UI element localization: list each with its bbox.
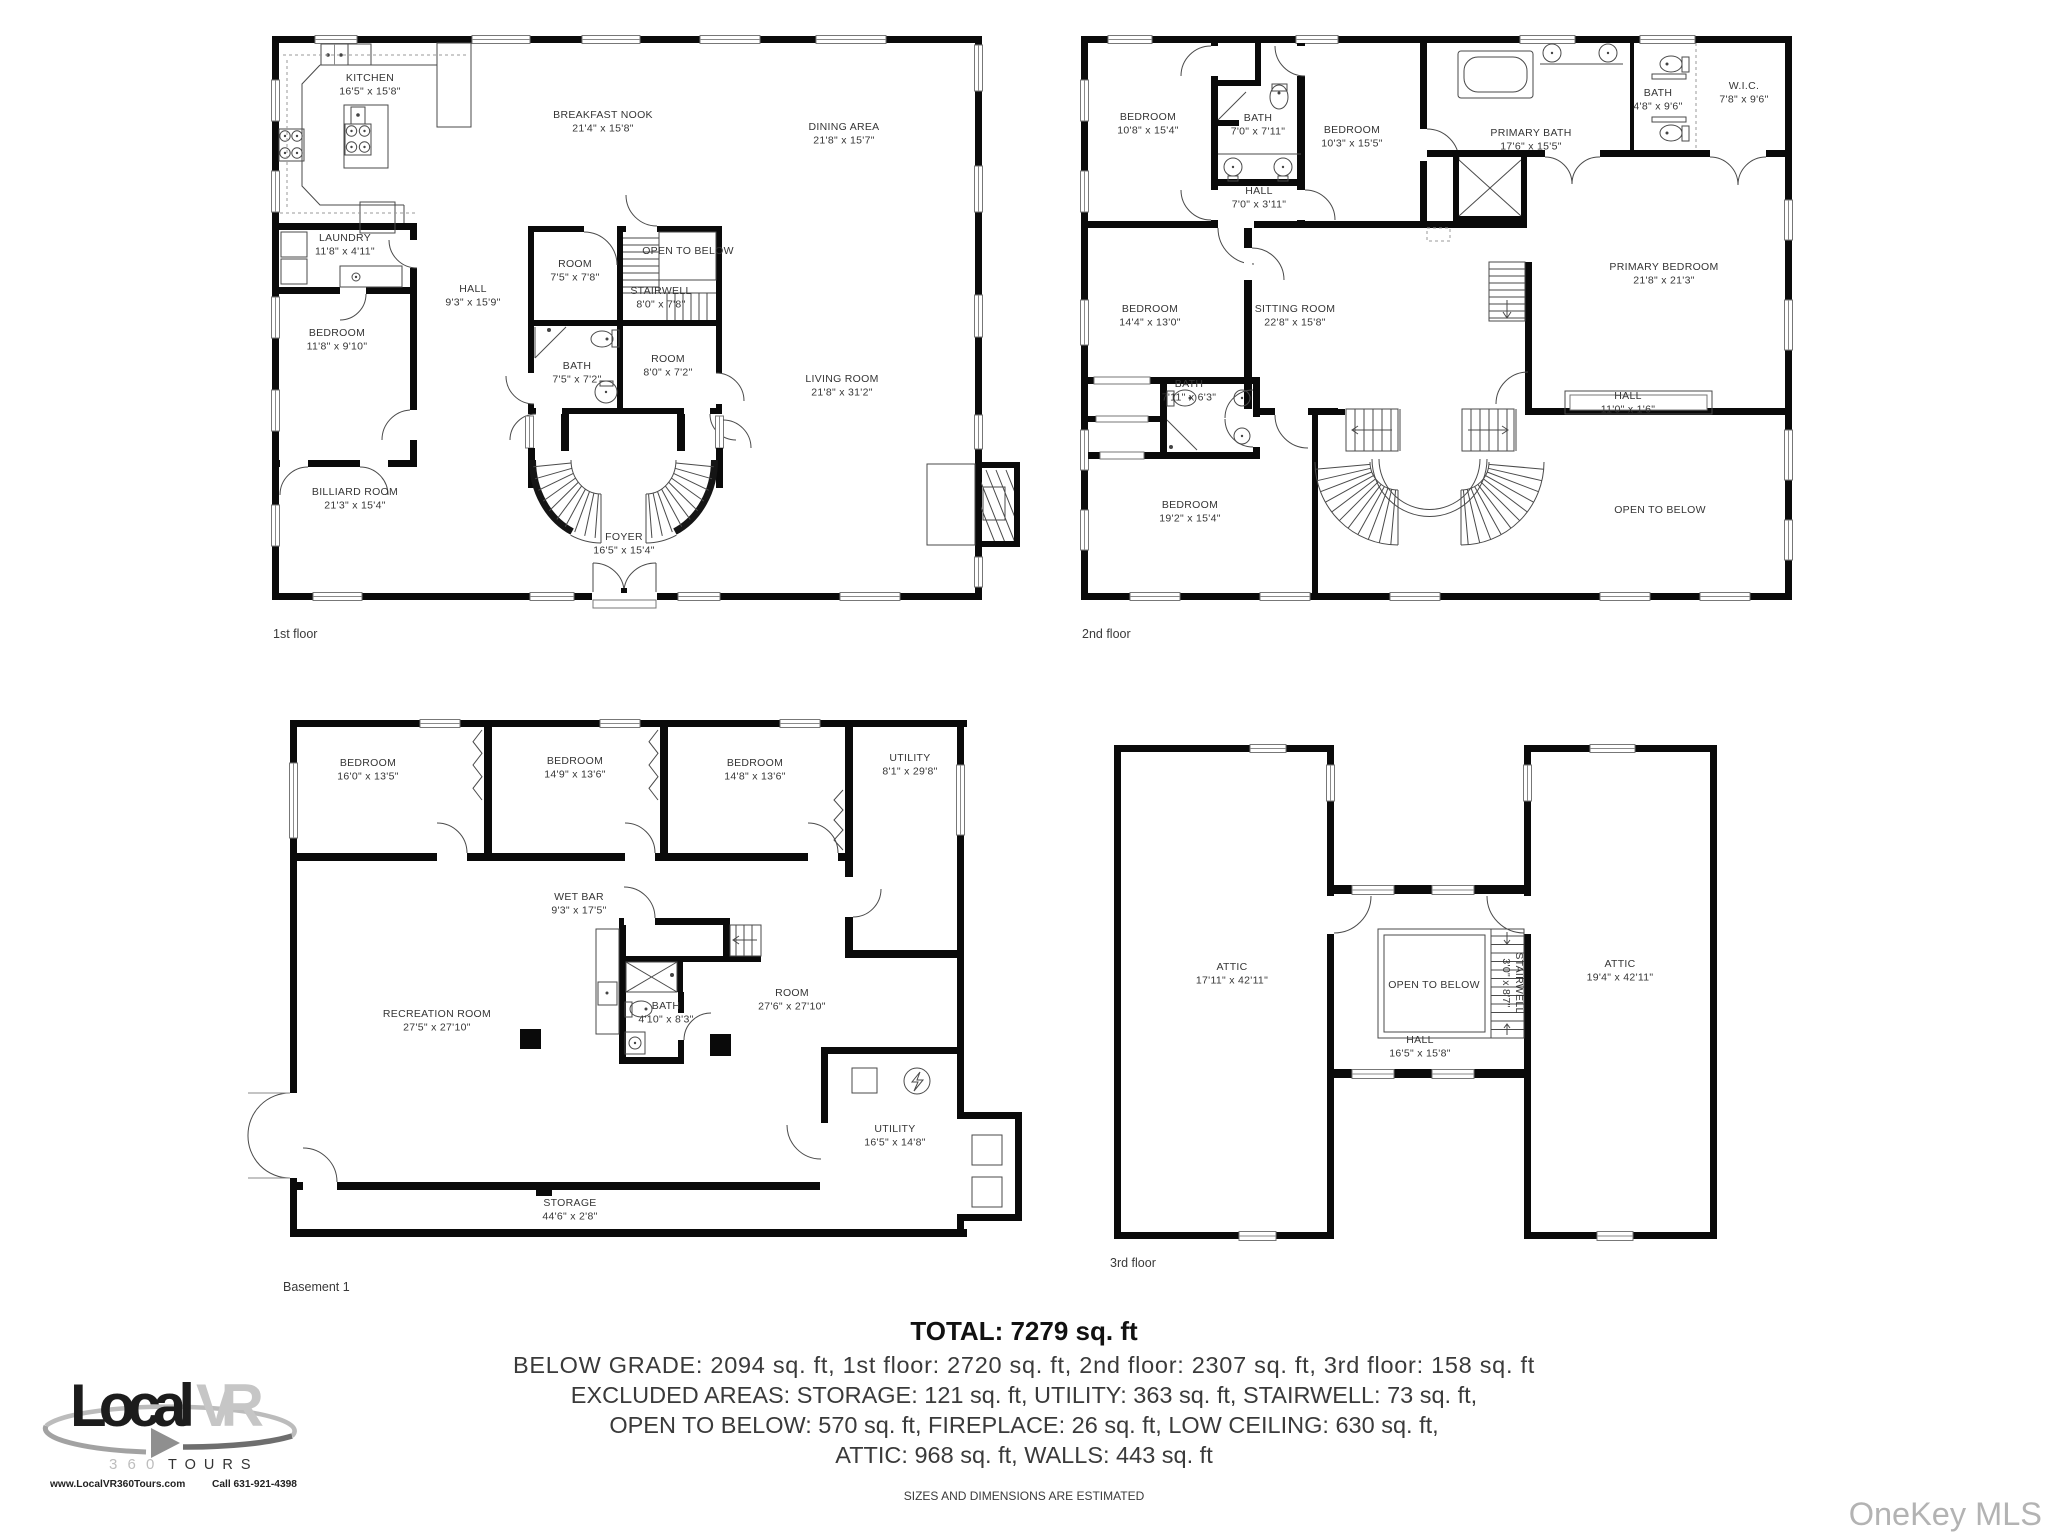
svg-text:BATH: BATH — [1644, 87, 1672, 99]
svg-text:8'0" x 7'2": 8'0" x 7'2" — [643, 367, 692, 379]
svg-text:PRIMARY BATH: PRIMARY BATH — [1490, 127, 1571, 139]
svg-text:VR: VR — [196, 1372, 264, 1439]
svg-text:14'9" x 13'6": 14'9" x 13'6" — [544, 769, 606, 781]
svg-text:10'8" x 15'4": 10'8" x 15'4" — [1117, 125, 1179, 137]
svg-text:STORAGE: STORAGE — [543, 1197, 596, 1209]
svg-text:RECREATION ROOM: RECREATION ROOM — [383, 1008, 491, 1020]
svg-text:27'6" x 27'10": 27'6" x 27'10" — [758, 1001, 826, 1013]
svg-text:16'0" x 13'5": 16'0" x 13'5" — [337, 771, 399, 783]
svg-text:21'8" x 21'3": 21'8" x 21'3" — [1633, 275, 1695, 287]
svg-text:OPEN TO BELOW: OPEN TO BELOW — [1388, 979, 1480, 991]
svg-text:16'5" x 15'8": 16'5" x 15'8" — [1389, 1048, 1451, 1060]
svg-text:11'8" x 4'11": 11'8" x 4'11" — [315, 246, 375, 258]
svg-text:BEDROOM: BEDROOM — [547, 755, 603, 767]
svg-text:UTILITY: UTILITY — [889, 752, 930, 764]
svg-text:BATH: BATH — [563, 360, 591, 372]
svg-text:19'4" x 42'11": 19'4" x 42'11" — [1587, 972, 1654, 984]
svg-text:Local: Local — [70, 1372, 195, 1439]
svg-text:HALL: HALL — [459, 283, 486, 295]
svg-text:4'10" x 8'3": 4'10" x 8'3" — [638, 1014, 693, 1026]
svg-text:27'5" x 27'10": 27'5" x 27'10" — [403, 1022, 471, 1034]
svg-text:BATH: BATH — [1175, 378, 1203, 390]
svg-text:3rd floor: 3rd floor — [1110, 1256, 1156, 1270]
svg-text:8'0" x 7'8": 8'0" x 7'8" — [636, 299, 685, 311]
svg-text:LAUNDRY: LAUNDRY — [319, 232, 371, 244]
svg-text:ATTIC: 968 sq. ft, WALLS: 443: ATTIC: 968 sq. ft, WALLS: 443 sq. ft — [835, 1442, 1213, 1468]
svg-text:9'3" x 17'5": 9'3" x 17'5" — [551, 905, 606, 917]
svg-text:ROOM: ROOM — [558, 258, 592, 270]
svg-text:STAIRWELL: STAIRWELL — [1513, 952, 1525, 1013]
svg-text:SITTING ROOM: SITTING ROOM — [1255, 303, 1336, 315]
svg-text:BREAKFAST NOOK: BREAKFAST NOOK — [553, 109, 653, 121]
svg-text:9'3" x 15'9": 9'3" x 15'9" — [445, 297, 500, 309]
svg-text:HALL: HALL — [1406, 1034, 1433, 1046]
svg-text:BEDROOM: BEDROOM — [1122, 303, 1178, 315]
svg-text:17'11" x 42'11": 17'11" x 42'11" — [1196, 975, 1268, 987]
svg-text:21'8" x 31'2": 21'8" x 31'2" — [811, 387, 873, 399]
svg-text:BATH: BATH — [652, 1000, 680, 1012]
svg-text:UTILITY: UTILITY — [874, 1123, 915, 1135]
svg-text:21'4" x 15'8": 21'4" x 15'8" — [572, 123, 634, 135]
svg-text:16'5" x 15'4": 16'5" x 15'4" — [593, 545, 655, 557]
svg-text:STAIRWELL: STAIRWELL — [630, 285, 691, 297]
svg-text:LIVING ROOM: LIVING ROOM — [805, 373, 878, 385]
svg-text:3 6 0: 3 6 0 — [109, 1456, 157, 1473]
svg-text:BEDROOM: BEDROOM — [1120, 111, 1176, 123]
svg-text:Call 631-921-4398: Call 631-921-4398 — [212, 1479, 297, 1490]
svg-text:ATTIC: ATTIC — [1604, 958, 1635, 970]
svg-text:19'2" x 15'4": 19'2" x 15'4" — [1159, 513, 1221, 525]
svg-text:TOTAL: 7279 sq. ft: TOTAL: 7279 sq. ft — [910, 1316, 1138, 1346]
svg-text:BEDROOM: BEDROOM — [340, 757, 396, 769]
svg-text:7'5" x 7'8": 7'5" x 7'8" — [550, 272, 599, 284]
svg-text:1st floor: 1st floor — [273, 627, 317, 641]
svg-text:14'8" x 13'6": 14'8" x 13'6" — [724, 771, 786, 783]
svg-text:DINING AREA: DINING AREA — [809, 121, 880, 133]
svg-text:W.I.C.: W.I.C. — [1729, 80, 1759, 92]
svg-text:KITCHEN: KITCHEN — [346, 72, 394, 84]
svg-text:11'0" x 1'6": 11'0" x 1'6" — [1601, 404, 1656, 416]
svg-text:BATH: BATH — [1244, 112, 1272, 124]
svg-text:PRIMARY BEDROOM: PRIMARY BEDROOM — [1609, 261, 1718, 273]
svg-text:14'4" x 13'0": 14'4" x 13'0" — [1119, 317, 1181, 329]
svg-text:22'8" x 15'8": 22'8" x 15'8" — [1264, 317, 1326, 329]
svg-text:16'5" x 15'8": 16'5" x 15'8" — [339, 86, 401, 98]
svg-text:ATTIC: ATTIC — [1216, 961, 1247, 973]
svg-text:WET BAR: WET BAR — [554, 891, 604, 903]
svg-text:BELOW GRADE: 2094 sq. ft, 1st: BELOW GRADE: 2094 sq. ft, 1st floor: 272… — [513, 1352, 1535, 1378]
svg-text:SIZES AND DIMENSIONS ARE ESTIM: SIZES AND DIMENSIONS ARE ESTIMATED — [904, 1489, 1145, 1503]
svg-text:BEDROOM: BEDROOM — [727, 757, 783, 769]
svg-text:8'1" x 29'8": 8'1" x 29'8" — [882, 766, 937, 778]
svg-text:FOYER: FOYER — [605, 531, 643, 543]
svg-text:Basement 1: Basement 1 — [283, 1280, 350, 1294]
svg-text:7'0" x 7'11": 7'0" x 7'11" — [1231, 126, 1286, 138]
svg-text:7'0" x 3'11": 7'0" x 3'11" — [1232, 199, 1287, 211]
svg-text:www.LocalVR360Tours.com: www.LocalVR360Tours.com — [49, 1479, 185, 1490]
svg-text:ROOM: ROOM — [651, 353, 685, 365]
svg-text:HALL: HALL — [1245, 185, 1272, 197]
svg-text:2nd floor: 2nd floor — [1082, 627, 1131, 641]
svg-text:OneKey MLS: OneKey MLS — [1849, 1496, 2042, 1532]
svg-text:17'6" x 15'5": 17'6" x 15'5" — [1500, 141, 1562, 153]
svg-text:OPEN TO BELOW: OPEN TO BELOW — [1614, 504, 1706, 516]
svg-text:16'5" x 14'8": 16'5" x 14'8" — [864, 1137, 926, 1149]
svg-text:BILLIARD ROOM: BILLIARD ROOM — [312, 486, 398, 498]
svg-text:EXCLUDED AREAS: STORAGE: 121 s: EXCLUDED AREAS: STORAGE: 121 sq. ft, UTI… — [571, 1382, 1477, 1408]
svg-text:OPEN TO BELOW: OPEN TO BELOW — [642, 245, 734, 257]
svg-text:11'8" x 9'10": 11'8" x 9'10" — [307, 341, 368, 353]
svg-text:21'3" x 15'4": 21'3" x 15'4" — [324, 500, 386, 512]
svg-text:7'5" x 7'2": 7'5" x 7'2" — [552, 374, 601, 386]
svg-text:ROOM: ROOM — [775, 987, 809, 999]
svg-text:OPEN TO BELOW: 570 sq. ft, FIR: OPEN TO BELOW: 570 sq. ft, FIREPLACE: 26… — [609, 1412, 1438, 1438]
svg-text:7'8" x 9'6": 7'8" x 9'6" — [1719, 94, 1768, 106]
svg-text:BEDROOM: BEDROOM — [309, 327, 365, 339]
svg-text:21'8" x 15'7": 21'8" x 15'7" — [813, 135, 875, 147]
svg-text:44'6" x 2'8": 44'6" x 2'8" — [542, 1211, 597, 1223]
svg-text:BEDROOM: BEDROOM — [1324, 124, 1380, 136]
svg-text:BEDROOM: BEDROOM — [1162, 499, 1218, 511]
svg-text:T O U R S: T O U R S — [168, 1457, 253, 1473]
svg-text:3'0" x 8'7": 3'0" x 8'7" — [1500, 958, 1512, 1007]
svg-text:10'3" x 15'5": 10'3" x 15'5" — [1321, 138, 1383, 150]
svg-text:4'8" x 9'6": 4'8" x 9'6" — [1633, 101, 1682, 113]
svg-text:7'11" x 6'3": 7'11" x 6'3" — [1162, 392, 1217, 404]
svg-text:HALL: HALL — [1614, 390, 1641, 402]
